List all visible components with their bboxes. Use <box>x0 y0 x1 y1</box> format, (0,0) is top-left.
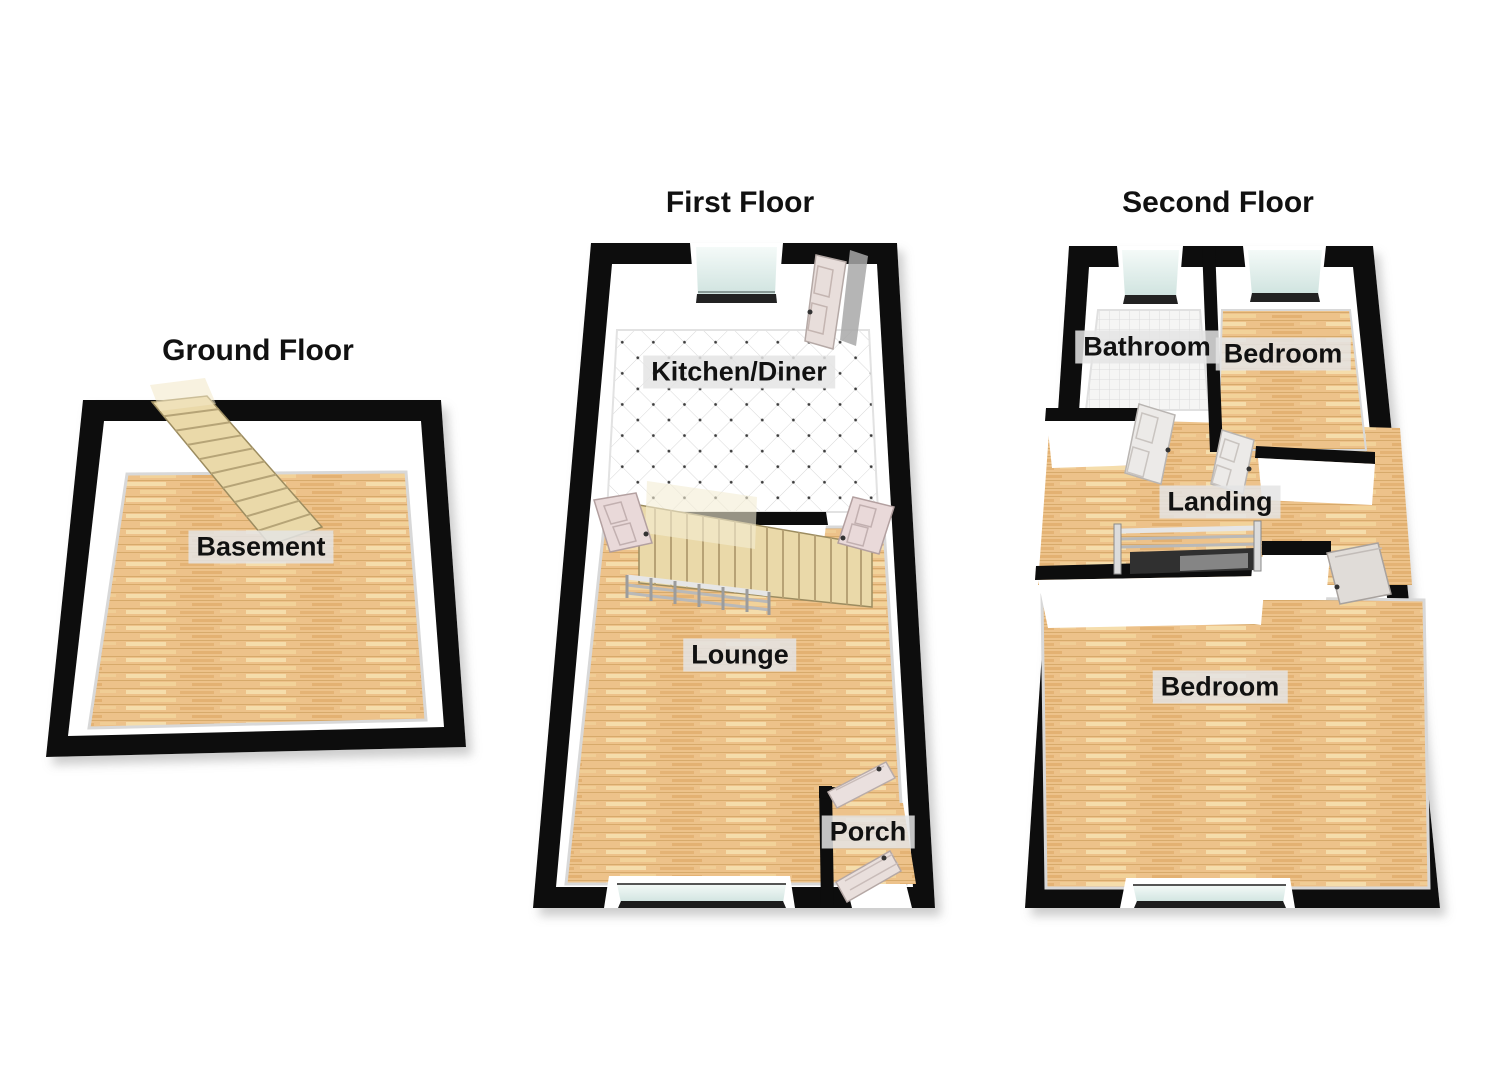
floor-title-ground: Ground Floor <box>162 334 354 368</box>
floor-title-first: First Floor <box>666 186 814 220</box>
room-label-landing: Landing <box>1160 486 1281 519</box>
room-label-porch: Porch <box>822 816 915 849</box>
room-label-kitchen-diner: Kitchen/Diner <box>643 356 835 389</box>
first-floor-plan <box>533 243 935 908</box>
landing-stair-opening <box>1130 548 1256 574</box>
bedroom-bottom-window <box>1120 878 1295 908</box>
ground-floor-plan <box>46 378 466 757</box>
room-label-bathroom: Bathroom <box>1075 331 1219 364</box>
floor-title-second: Second Floor <box>1122 186 1314 220</box>
room-label-bedroom-bottom: Bedroom <box>1153 671 1288 704</box>
bedroom-bottom-floor <box>1042 595 1429 888</box>
bedroom-window <box>1243 246 1326 302</box>
floorplan-page: Ground Floor First Floor Second Floor Ba… <box>0 0 1485 1080</box>
bedroom-top-floor <box>1218 310 1366 450</box>
room-label-bedroom-top: Bedroom <box>1216 338 1351 371</box>
room-label-basement: Basement <box>188 531 333 564</box>
lounge-window <box>604 876 795 908</box>
bathroom-window <box>1117 246 1183 304</box>
kitchen-window <box>690 243 783 303</box>
room-label-lounge: Lounge <box>683 639 796 672</box>
